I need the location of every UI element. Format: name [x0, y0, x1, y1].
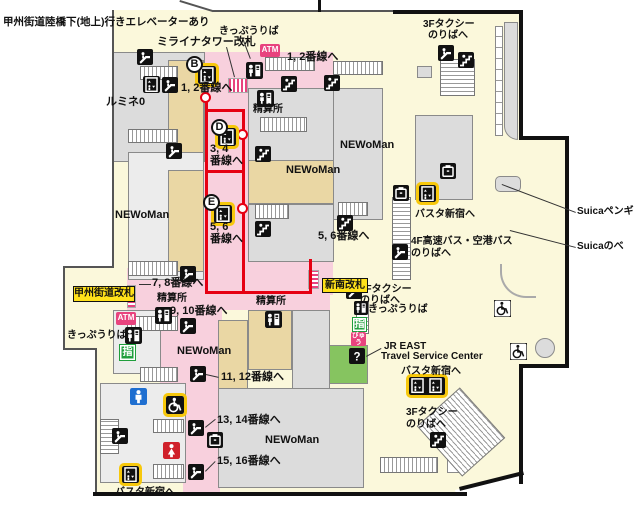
ramp-band [504, 22, 518, 140]
koshu-kaido-gate-badge: 甲州街道改札 [73, 286, 135, 302]
bldg-small [417, 66, 432, 78]
reserved-seat-machine-badge: 指 [352, 317, 367, 332]
shin-minami-gate-badge: 新南改札 [322, 278, 368, 293]
escalator-icon [162, 77, 178, 93]
taxi-3f-label-bottom-2: のりばへ [406, 419, 446, 431]
wall-line [213, 10, 395, 12]
bldg-right [333, 88, 383, 220]
accessible-route-node [237, 203, 248, 214]
coin-locker-icon [393, 185, 409, 201]
escalator-icon [392, 244, 408, 260]
escalator-icon [137, 49, 153, 65]
taxi-3f-label-topright-2: のりばへ [428, 30, 468, 42]
stairs-icon [324, 75, 340, 91]
accessible-route-line [205, 291, 312, 294]
wall-column [495, 26, 503, 136]
wall [519, 364, 523, 484]
wall [393, 10, 523, 14]
stairs-shape [392, 197, 411, 280]
stairs-shape [153, 419, 184, 433]
escalator-icon [188, 420, 204, 436]
wall-line [63, 266, 65, 350]
accessible-route-line [205, 170, 245, 173]
stairs-icon [458, 52, 474, 68]
newoman-label-top: NEWoMan [340, 139, 394, 152]
station-map: BDE?甲州街道改札新南改札ATMATM指指びゅう甲州街道陸橋下(地上)行きエレ… [0, 0, 640, 529]
wall [519, 364, 569, 368]
line-1-2-label-left: 1, 2番線へ [181, 82, 232, 95]
escalator-icon [438, 45, 454, 61]
line-9-10-label: 9, 10番線へ [170, 305, 227, 318]
note-koshu-elevator: 甲州街道陸橋下(地上)行きエレベーターあり [3, 16, 210, 28]
miraina-gate-label: ミライナタワー改札 [157, 36, 256, 49]
reserved-seat-machine-badge: 指 [119, 344, 136, 361]
line-5-6-label-1: 5, 6 [210, 221, 228, 234]
stairs-icon [255, 146, 271, 162]
line-13-14-label: 13, 14番線へ [217, 414, 281, 427]
view-plaza-badge: びゅう [351, 332, 366, 346]
route-marker-d: D [211, 119, 228, 136]
wall-line [112, 10, 114, 268]
line-3-4-label-2: 番線へ [210, 155, 243, 168]
bus-4f-label-1: 4F高速バス・空港バス [411, 236, 513, 248]
escalator-icon [180, 318, 196, 334]
stairs-shape [333, 61, 383, 75]
stairs-shape [140, 367, 178, 382]
stairs-shape [153, 464, 184, 479]
stairs-shape [128, 129, 178, 143]
coin-locker-icon [207, 432, 223, 448]
bldg-gray-band [292, 310, 330, 390]
pillar [535, 338, 555, 358]
wall [519, 10, 523, 140]
line-5-6-label-right: 5, 6番線へ [318, 230, 369, 243]
seisanjo-label-top: 精算所 [253, 104, 283, 116]
ticket-machine-icon [125, 327, 142, 344]
pointer-line [139, 284, 151, 285]
route-marker-b: B [186, 56, 203, 73]
stairs-icon [255, 221, 271, 237]
escalator-icon [188, 464, 204, 480]
seisanjo-label-left: 精算所 [157, 293, 187, 305]
stairs-icon [281, 76, 297, 92]
stairs-shape [338, 202, 368, 216]
accessible-toilet-icon [166, 396, 184, 414]
escalator-icon [166, 143, 182, 159]
wall-line [63, 266, 112, 268]
coin-locker-icon [440, 163, 456, 179]
elevator-icon-accessible [122, 466, 139, 483]
ticket-office-label-right: きっぷうりば [368, 304, 428, 316]
wheelchair-ramp-icon [510, 343, 527, 360]
elevator-double-icon [409, 377, 445, 395]
bus-4f-label-2: のりばへ [411, 248, 451, 260]
womens-toilet-icon [163, 442, 180, 459]
escalator-icon [112, 428, 128, 444]
taxi-3f-label-bottom-1: 3Fタクシー [406, 407, 458, 419]
atm-badge: ATM [116, 312, 136, 325]
info-icon: ? [349, 348, 365, 364]
stairs-shape [128, 261, 178, 276]
bldg-left2-tan [168, 170, 204, 272]
atm-badge: ATM [260, 44, 280, 57]
newoman-label-center: NEWoMan [286, 164, 340, 177]
stairs-shape [260, 117, 307, 132]
route-marker-e: E [203, 194, 220, 211]
busta-label-southwest: バスタ新宿へ [115, 487, 175, 499]
newoman-label-south: NEWoMan [265, 434, 319, 447]
line-5-6-label-2: 番線へ [210, 233, 243, 246]
wheelchair-ramp-icon [494, 300, 511, 317]
seisanjo-label-center: 精算所 [256, 296, 286, 308]
wall-line [63, 348, 95, 350]
taxi-3f-label-topright-1: 3Fタクシー [423, 19, 475, 31]
elevator-icon-accessible [419, 185, 436, 202]
elevator-icon [143, 76, 160, 93]
busta-label-southeast: バスタ新宿へ [401, 366, 461, 378]
wall [565, 136, 569, 368]
suica-label-2: Suicaのべ [577, 241, 624, 253]
fare-adjustment-icon [265, 311, 282, 328]
ticket-machine-icon [246, 62, 263, 79]
newoman-label-mid: NEWoMan [177, 345, 231, 358]
busta-label-right: バスタ新宿へ [415, 209, 475, 221]
newoman-label-left: NEWoMan [115, 209, 169, 222]
line-1-2-label-top: 1, 2番線へ [287, 51, 338, 64]
mens-toilet-icon [130, 388, 147, 405]
accessible-route-node [237, 129, 248, 140]
wall [318, 0, 321, 12]
jr-east-label-2: Travel Service Center [381, 351, 483, 363]
suica-label-1: Suicaペンギ [577, 206, 634, 218]
stairs-shape [255, 204, 289, 219]
line-3-4-label-1: 3, 4 [210, 143, 228, 156]
line-15-16-label: 15, 16番線へ [217, 455, 281, 468]
stairs-shape [380, 457, 438, 473]
accessible-route-line [309, 259, 312, 291]
lumine0-label: ルミネ0 [106, 96, 145, 109]
wall [519, 136, 569, 140]
escalator-icon [190, 366, 206, 382]
accessible-route-line [205, 109, 245, 112]
wall-line [95, 348, 97, 494]
line-7-8-label: 7, 8番線へ [152, 277, 203, 290]
line-11-12-label: 11, 12番線へ [221, 371, 284, 384]
svg-text:?: ? [353, 351, 360, 363]
stairs-icon [430, 432, 446, 448]
ticket-office-label-left: きっぷうりば [67, 330, 127, 342]
stairs-icon [337, 215, 353, 231]
